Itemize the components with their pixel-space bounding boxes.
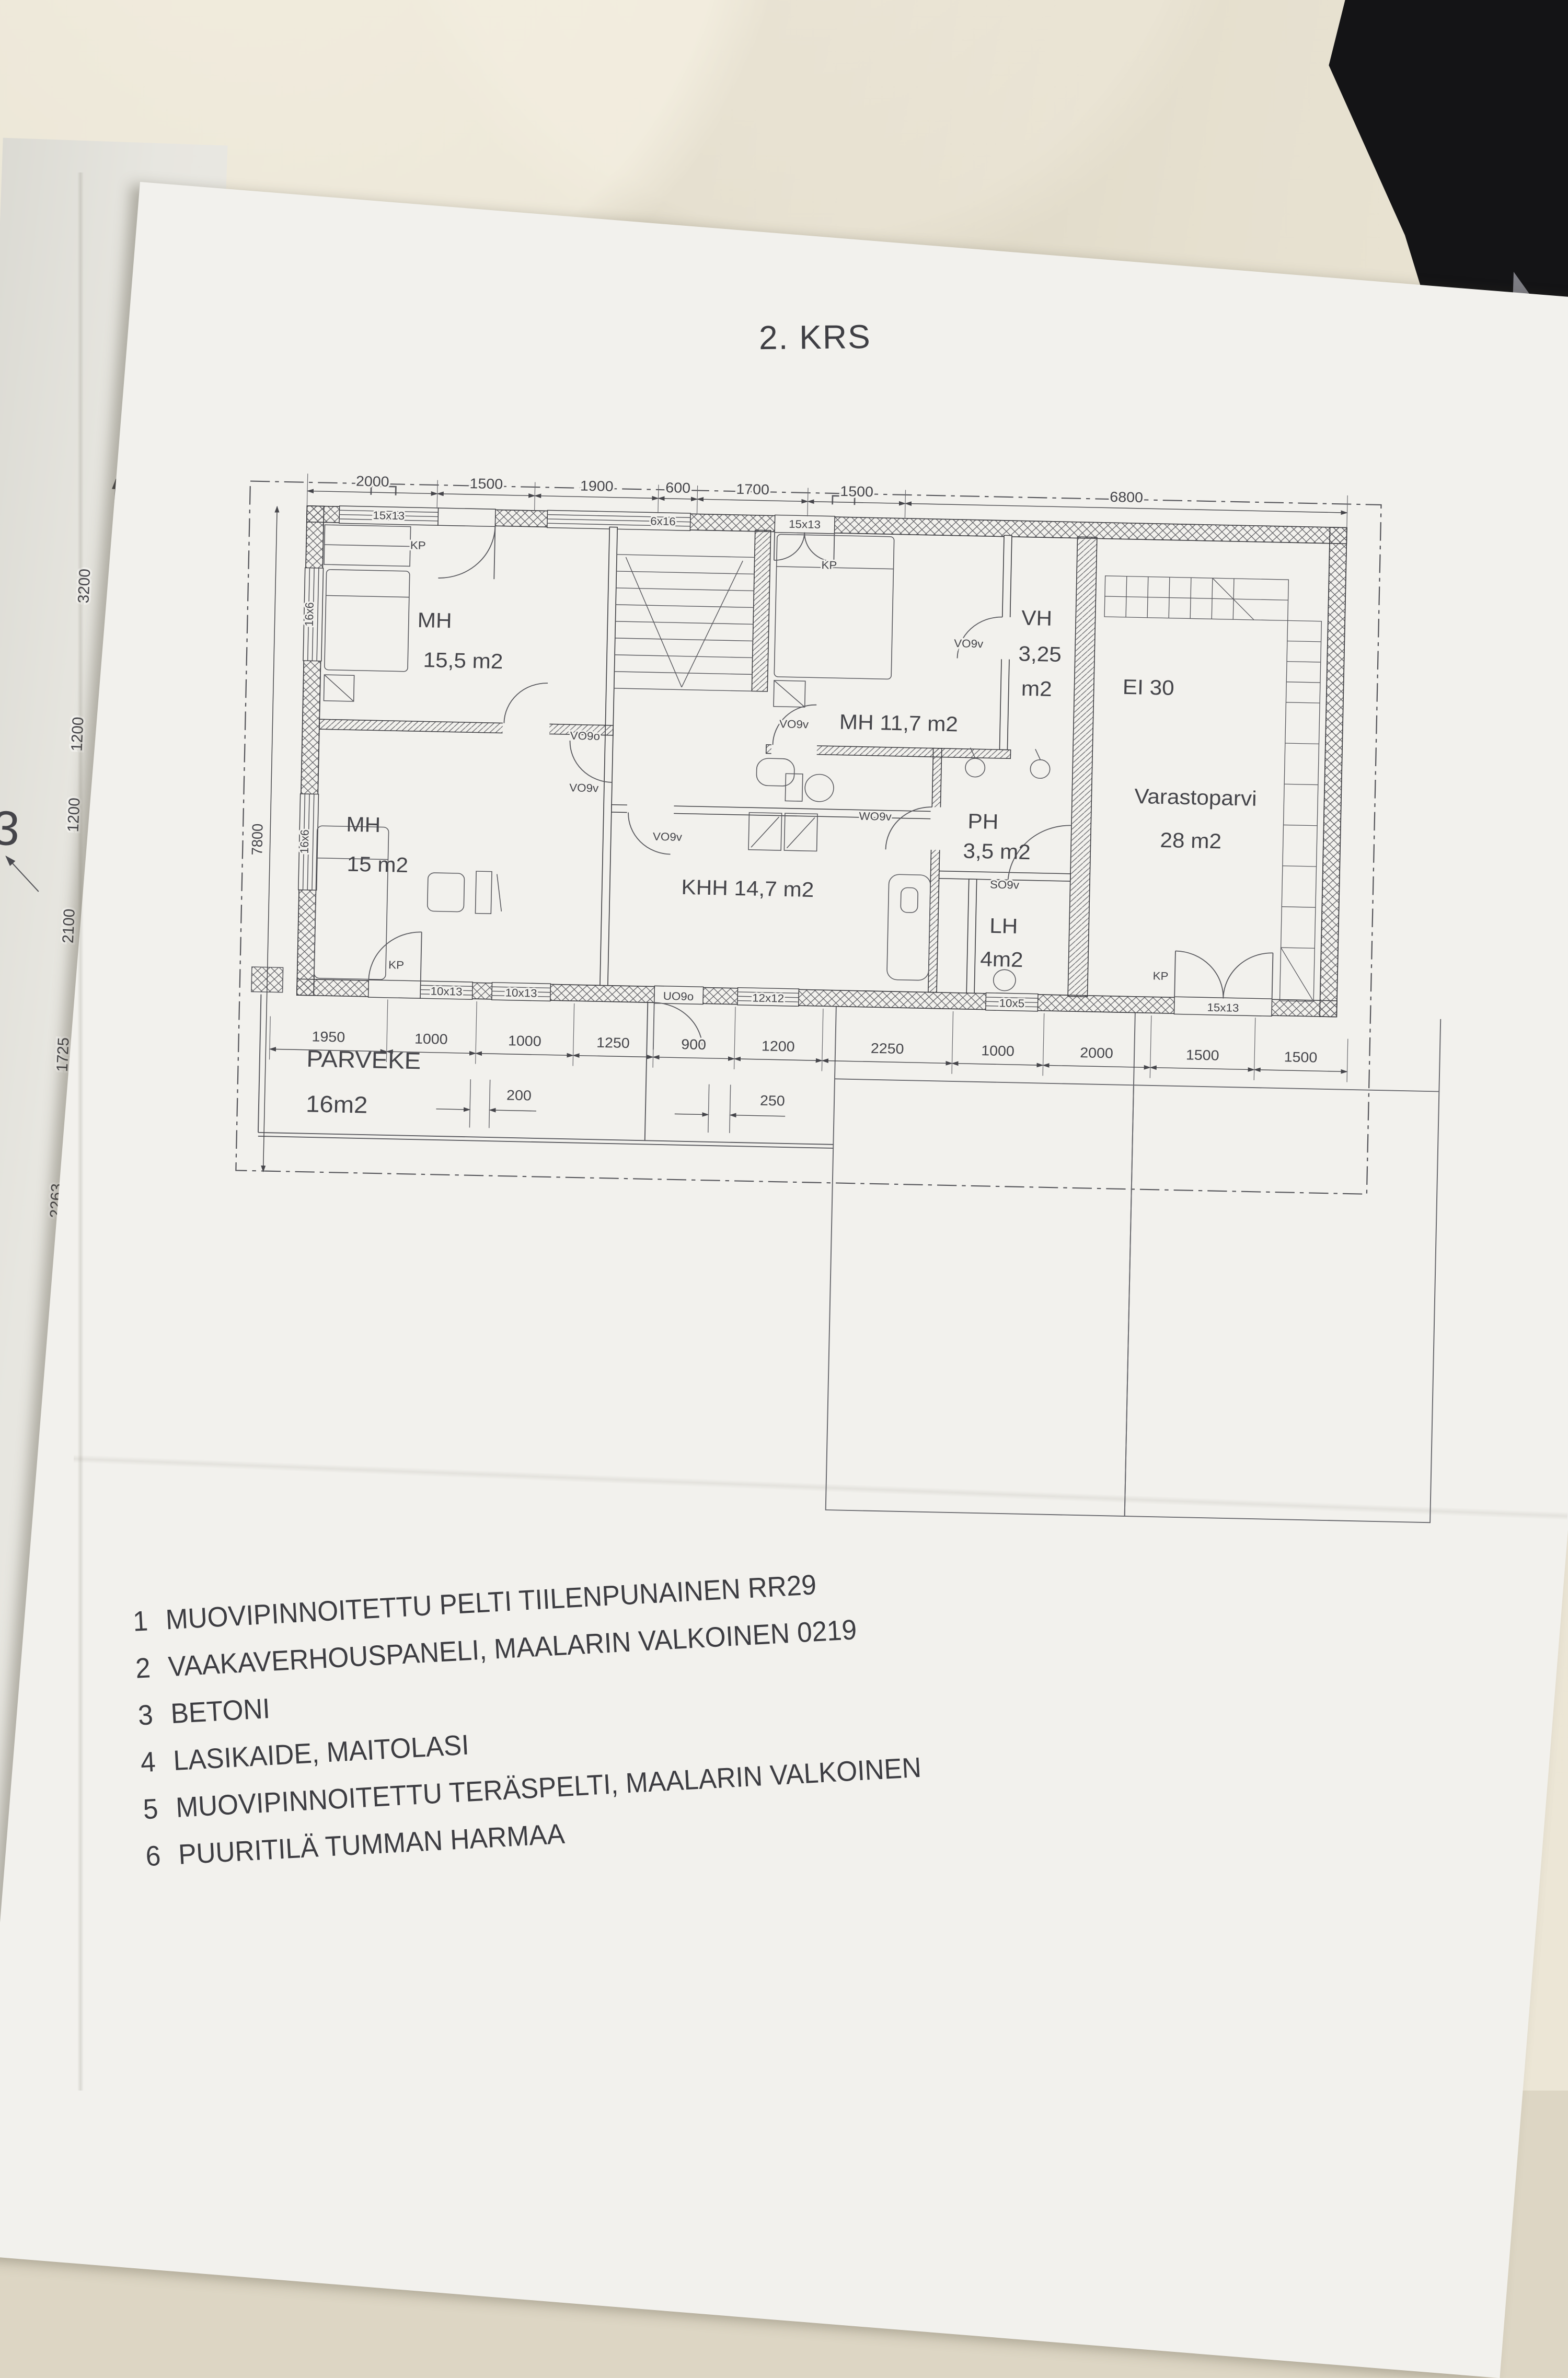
dim-bot-2250: 2250	[871, 1040, 904, 1057]
door-tag-uo9o: UO9o	[663, 989, 694, 1003]
window-tag-10x13-b: 10x13	[505, 986, 537, 1000]
window-tag-16x6-a: 16x6	[302, 602, 316, 627]
dim-bot-1000a: 1000	[414, 1031, 448, 1047]
dim-bot-1500a: 1500	[1186, 1047, 1219, 1064]
door-tag-vo9v-mh2: VO9v	[779, 718, 809, 731]
legend-num: 2	[134, 1643, 169, 1692]
window-tag-10x5: 10x5	[999, 997, 1024, 1010]
dim-top-1900: 1900	[580, 478, 614, 494]
dim-250: 250	[760, 1092, 785, 1109]
dim-top-6800: 6800	[1110, 489, 1143, 505]
secondary-dimensions	[436, 1079, 786, 1134]
legend-num: 5	[142, 1784, 177, 1833]
room-label-vh: VH	[1021, 606, 1053, 630]
room-label-mh1: MH	[417, 608, 452, 632]
room-area-vh-2: m2	[1021, 677, 1052, 701]
window-tag-6x16: 6x16	[650, 515, 676, 528]
door-tag-vo9v-vh: VO9v	[954, 637, 984, 651]
room-label-khh: KHH 14,7 m2	[681, 875, 814, 902]
room-area-mh1: 15,5 m2	[423, 648, 503, 673]
legend-text: BETONI	[169, 1685, 271, 1737]
window-tag-15x13-a: 15x13	[373, 509, 405, 523]
legend-num: 6	[144, 1831, 179, 1880]
door-tag-vo9v-hall: VO9v	[569, 781, 599, 795]
room-label-parveke: PARVEKE	[306, 1045, 421, 1074]
photo: 3200 1200 1200 2100 1725 2263 3 2. KRS	[0, 0, 1568, 2091]
label-ei30: EI 30	[1123, 675, 1175, 700]
door-tag-kp-4: KP	[1152, 969, 1168, 983]
dim-top-1500a: 1500	[469, 476, 503, 492]
window-tag-15x13-b: 15x13	[789, 517, 821, 531]
window-tag-15x13-c: 15x13	[1207, 1001, 1239, 1014]
stairs	[614, 555, 755, 691]
room-label-varasto: Varastoparvi	[1134, 784, 1257, 811]
room-area-vh-1: 3,25	[1018, 642, 1062, 666]
room-area-varasto: 28 m2	[1160, 828, 1221, 853]
dim-bot-900: 900	[681, 1036, 706, 1053]
door-tag-kp-3: KP	[388, 959, 404, 972]
legend-num: 4	[140, 1737, 175, 1786]
dim-bot-1000b: 1000	[508, 1033, 541, 1049]
dim-top-1500b: 1500	[840, 483, 873, 500]
legend: 1MUOVIPINNOITETTU PELTI TIILENPUNAINEN R…	[132, 1556, 925, 1880]
dim-bot-1500b: 1500	[1284, 1049, 1317, 1066]
door-tag-vo9o: VO9o	[570, 729, 600, 743]
interior-walls	[314, 521, 1097, 997]
dim-top-600: 600	[665, 480, 690, 496]
window-tag-16x6-b: 16x6	[297, 829, 312, 854]
opening-tags: 15x13 KP 6x16 15x13 KP 16x6 16x6 VO9o VO…	[295, 507, 1249, 1014]
floor-plan: PARVEKE 16m2	[220, 455, 1478, 1571]
window-tag-12x12: 12x12	[752, 991, 784, 1005]
paper-fold-line	[77, 172, 84, 2091]
clipped-digit: 3	[0, 800, 21, 856]
room-label-mh2: MH 11,7 m2	[839, 710, 958, 736]
lower-roof-outline	[826, 1007, 1441, 1523]
dim-left-7800: 7800	[249, 823, 266, 855]
dim-bot-1950: 1950	[312, 1029, 345, 1045]
door-tag-vo9v-khh: VO9v	[653, 830, 683, 844]
door-tag-wo9v: WO9v	[859, 810, 892, 823]
bottom-dimension-labels: 1950 1000 1000 1250 900 1200 2250 1000 2…	[312, 1029, 1317, 1066]
room-area-mh3: 15 m2	[347, 852, 408, 876]
dim-200: 200	[506, 1087, 532, 1103]
window-tag-10x13-a: 10x13	[430, 985, 462, 998]
exterior-walls	[297, 506, 1347, 1017]
room-label-ph: PH	[967, 810, 999, 834]
room-label-lh: LH	[989, 914, 1018, 938]
room-area-parveke: 16m2	[306, 1090, 368, 1118]
room-area-lh: 4m2	[980, 947, 1023, 972]
dim-bot-2000: 2000	[1080, 1045, 1113, 1061]
dim-left-2100: 2100	[60, 908, 78, 943]
legend-num: 1	[132, 1597, 167, 1645]
door-tag-kp-1: KP	[410, 539, 426, 552]
dim-bot-1250: 1250	[596, 1034, 630, 1051]
dim-top-1700: 1700	[736, 481, 769, 498]
legend-num: 3	[137, 1690, 172, 1739]
dim-bot-1200: 1200	[762, 1038, 795, 1055]
page-title: 2. KRS	[759, 317, 872, 357]
room-area-ph: 3,5 m2	[963, 839, 1031, 864]
door-tag-so9v: SO9v	[990, 878, 1020, 892]
door-tag-kp-2: KP	[821, 559, 837, 572]
dim-top-2000: 2000	[356, 473, 389, 490]
dim-bot-1000c: 1000	[981, 1043, 1014, 1059]
room-label-mh3: MH	[346, 813, 381, 837]
